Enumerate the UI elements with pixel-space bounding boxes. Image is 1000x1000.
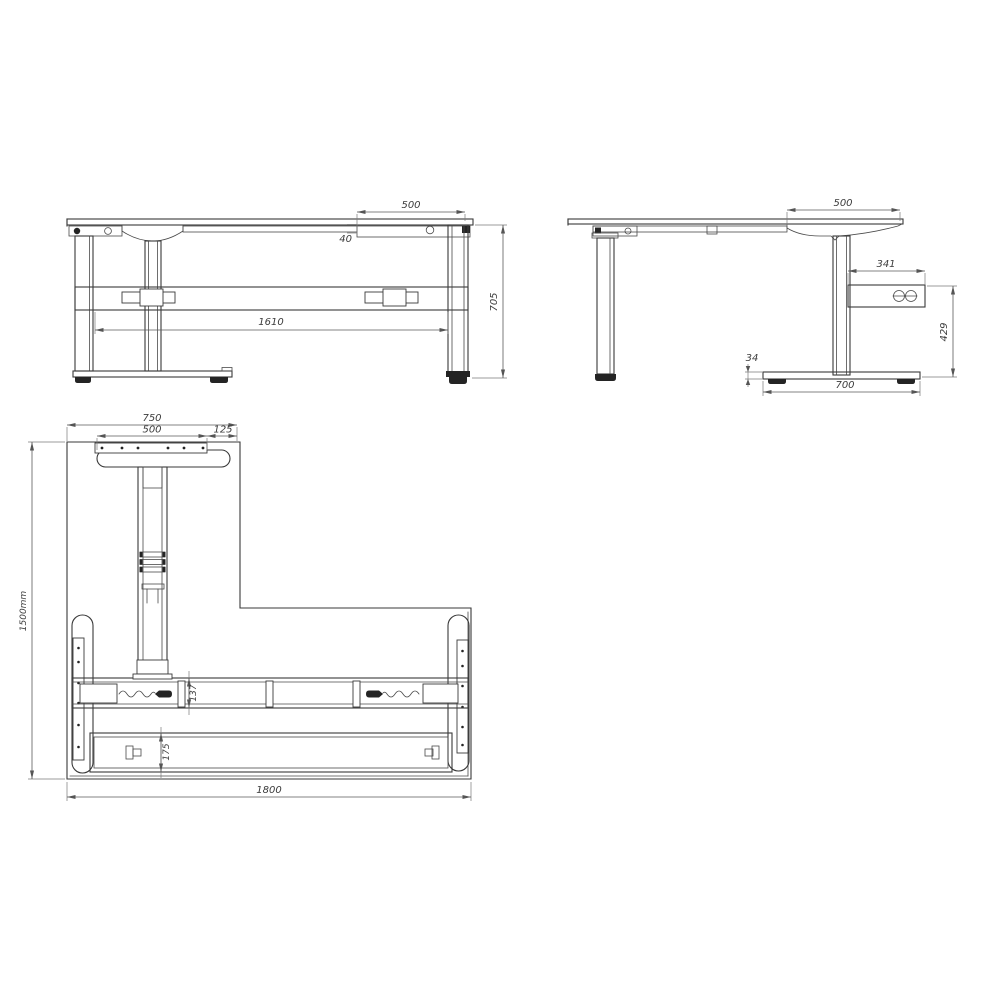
right-foot-front <box>446 371 470 384</box>
dim-plan-overall-depth: 1500mm <box>19 442 65 779</box>
plan-view: 750 500 125 1500mm 137 175 <box>19 413 471 801</box>
dim-label-plan-137: 137 <box>189 684 199 701</box>
dim-plan-tray-depth: 175 <box>161 727 172 778</box>
column-plan <box>133 467 172 679</box>
dim-side-box-to-floor: 429 <box>922 286 957 377</box>
cable-left <box>119 691 172 698</box>
dim-label-plan-500: 500 <box>142 425 161 436</box>
dim-front-overall-height: 705 <box>472 225 507 378</box>
dim-plan-edge-offset: 125 <box>207 425 237 437</box>
dim-label-plan-125: 125 <box>213 425 232 436</box>
desktop-return-profile <box>787 224 902 240</box>
under-desk-rail-front <box>69 226 470 241</box>
dim-label-side-700: 700 <box>835 380 854 391</box>
dim-label-plan-175: 175 <box>162 743 172 760</box>
dim-label-plan-1500mm: 1500mm <box>19 591 29 632</box>
desk-outline-plan <box>67 442 471 779</box>
front-view: 500 40 1610 705 <box>67 200 507 384</box>
cable-right <box>366 691 419 698</box>
dim-label-front-705: 705 <box>489 292 500 311</box>
dim-label-side-341: 341 <box>876 259 895 270</box>
dim-label-plan-1800: 1800 <box>256 785 281 796</box>
cable-tray-plan <box>90 733 452 772</box>
crossbeam-plan <box>72 678 468 708</box>
tray-clip-left <box>126 746 141 759</box>
control-box <box>848 285 925 307</box>
top-mounting-plate <box>95 443 207 453</box>
desktop-front <box>67 219 473 226</box>
left-leg-side <box>592 233 618 381</box>
dim-label-side-429: 429 <box>939 322 950 341</box>
dim-side-foot-length: 700 <box>763 380 920 396</box>
side-view: 500 341 429 34 700 <box>568 198 957 396</box>
dim-label-front-40: 40 <box>339 234 352 245</box>
right-leg-front <box>448 225 468 372</box>
dim-plan-overall-width: 1800 <box>67 782 471 801</box>
technical-drawing-page: 500 40 1610 705 <box>0 0 1000 1000</box>
dim-side-control-box: 341 <box>848 259 925 285</box>
tray-clip-right <box>425 746 439 759</box>
dim-label-front-500: 500 <box>401 200 420 211</box>
desktop-side <box>568 219 903 225</box>
dim-label-front-1610: 1610 <box>258 317 283 328</box>
left-leg-front <box>75 236 93 371</box>
desk-frame-technical-drawing: 500 40 1610 705 <box>0 0 1000 1000</box>
dim-label-side-34: 34 <box>746 353 759 364</box>
crossbeam-front <box>75 287 468 310</box>
left-foot-front <box>73 368 232 384</box>
under-desk-rail-side <box>593 226 787 236</box>
dim-front-leg-span: 1610 <box>95 312 448 334</box>
dim-label-side-500: 500 <box>833 198 852 209</box>
dim-front-tray-width: 500 <box>357 200 465 234</box>
dim-side-return-width: 500 <box>787 198 900 226</box>
dim-front-top-thickness: 40 <box>339 225 357 246</box>
dim-side-foot-height: 34 <box>745 353 762 387</box>
dim-label-plan-750: 750 <box>142 413 161 424</box>
